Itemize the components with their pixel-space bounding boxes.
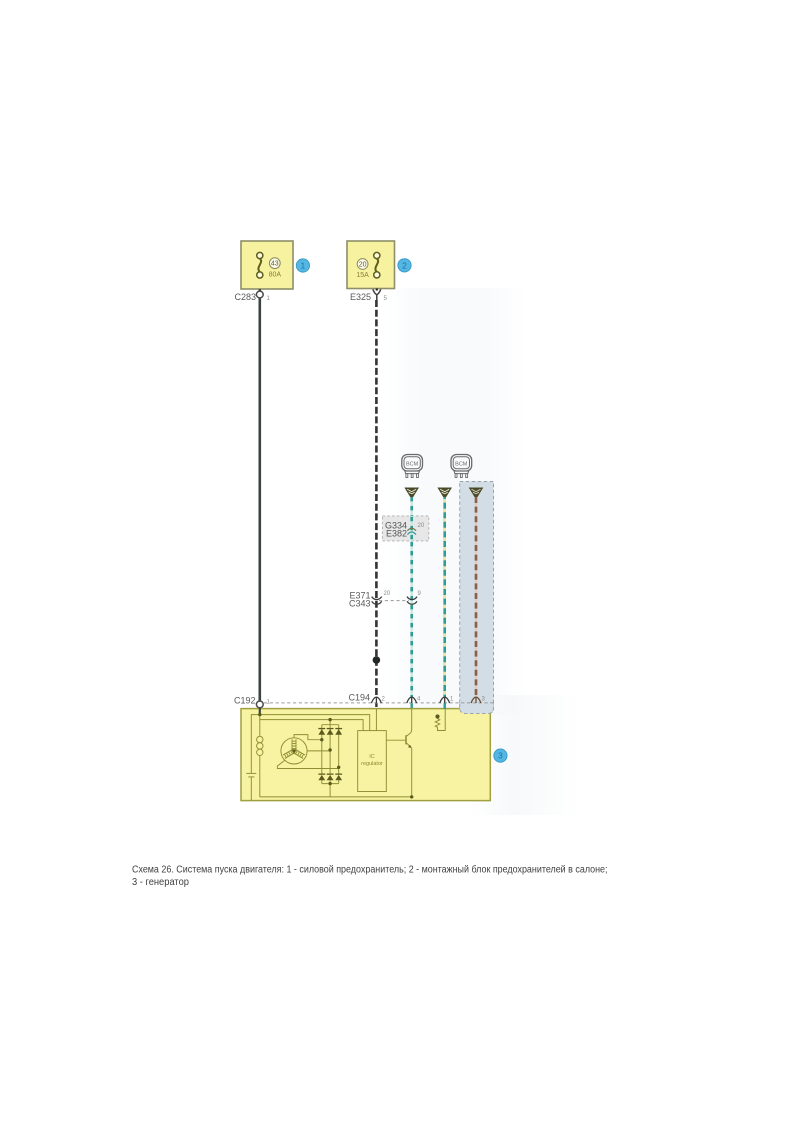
svg-text:Схема 26. Система пуска двигат: Схема 26. Система пуска двигателя: 1 - с… <box>132 864 608 876</box>
svg-text:20: 20 <box>384 591 391 597</box>
svg-text:2: 2 <box>402 260 407 270</box>
svg-text:3: 3 <box>498 751 503 761</box>
svg-text:2: 2 <box>382 697 386 703</box>
svg-text:3 - генератор: 3 - генератор <box>132 877 189 888</box>
svg-text:C194: C194 <box>348 693 370 703</box>
svg-text:15A: 15A <box>356 272 369 279</box>
svg-text:C343: C343 <box>349 598 371 608</box>
svg-text:IC: IC <box>369 754 375 760</box>
svg-text:E382: E382 <box>386 529 407 539</box>
svg-text:C283: C283 <box>234 292 256 302</box>
svg-text:BCM: BCM <box>455 462 468 468</box>
svg-text:E325: E325 <box>350 292 371 302</box>
svg-text:1: 1 <box>301 261 306 271</box>
svg-text:regulator: regulator <box>361 761 383 767</box>
svg-text:43: 43 <box>271 261 279 268</box>
svg-text:20: 20 <box>418 523 425 529</box>
svg-text:20: 20 <box>359 262 367 269</box>
svg-text:1: 1 <box>267 296 271 302</box>
svg-text:C192: C192 <box>234 696 256 706</box>
svg-text:80A: 80A <box>269 272 282 279</box>
svg-text:BCM: BCM <box>406 462 419 468</box>
